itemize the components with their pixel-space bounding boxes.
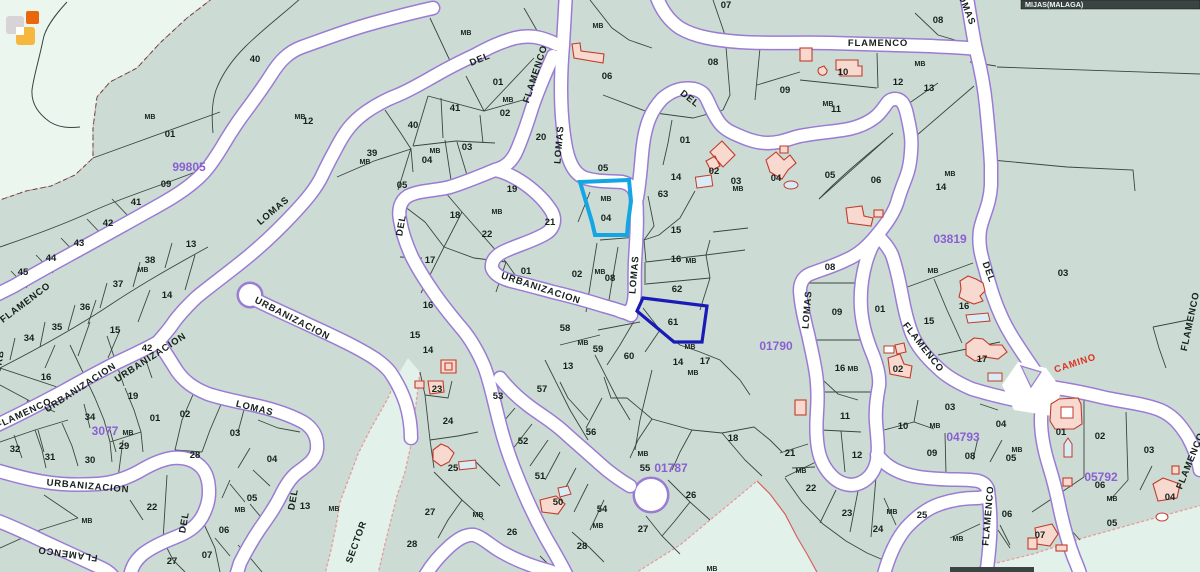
svg-text:37: 37 — [113, 279, 124, 290]
svg-text:05: 05 — [1006, 453, 1017, 464]
svg-text:16: 16 — [671, 254, 682, 265]
svg-text:15: 15 — [924, 316, 935, 327]
svg-text:02: 02 — [180, 409, 191, 420]
svg-text:MB: MB — [601, 196, 612, 203]
svg-text:06: 06 — [1002, 509, 1013, 520]
svg-text:01: 01 — [493, 77, 504, 88]
svg-text:MB: MB — [796, 468, 807, 475]
svg-text:55: 55 — [640, 463, 651, 474]
svg-text:26: 26 — [507, 527, 518, 538]
svg-text:03: 03 — [945, 402, 956, 413]
svg-text:09: 09 — [927, 448, 938, 459]
svg-text:01: 01 — [1056, 427, 1067, 438]
svg-text:MB: MB — [492, 209, 503, 216]
svg-text:05: 05 — [598, 163, 609, 174]
svg-text:24: 24 — [873, 524, 884, 535]
svg-text:MB: MB — [930, 423, 941, 430]
svg-text:3077: 3077 — [92, 424, 119, 438]
svg-text:MB: MB — [82, 518, 93, 525]
svg-text:14: 14 — [936, 182, 947, 193]
svg-text:62: 62 — [672, 284, 683, 295]
svg-text:MB: MB — [1012, 447, 1023, 454]
svg-text:05: 05 — [1107, 518, 1118, 529]
svg-text:MB: MB — [593, 23, 604, 30]
svg-text:MB: MB — [915, 61, 926, 68]
svg-text:19: 19 — [507, 184, 518, 195]
svg-text:MB: MB — [953, 536, 964, 543]
svg-text:29: 29 — [119, 441, 130, 452]
svg-text:31: 31 — [45, 452, 56, 463]
svg-text:MB: MB — [430, 148, 441, 155]
svg-text:05: 05 — [825, 170, 836, 181]
svg-text:39: 39 — [367, 148, 378, 159]
svg-text:25: 25 — [448, 463, 459, 474]
svg-text:28: 28 — [407, 539, 418, 550]
svg-text:36: 36 — [80, 302, 91, 313]
svg-text:50: 50 — [553, 497, 564, 508]
svg-text:18: 18 — [450, 210, 461, 221]
svg-text:60: 60 — [624, 351, 635, 362]
svg-text:35: 35 — [52, 322, 63, 333]
svg-text:17: 17 — [425, 255, 436, 266]
svg-text:02: 02 — [572, 269, 583, 280]
svg-text:07: 07 — [1035, 530, 1046, 541]
svg-text:01787: 01787 — [654, 461, 688, 475]
svg-text:12: 12 — [852, 450, 863, 461]
svg-text:52: 52 — [518, 436, 529, 447]
svg-text:16: 16 — [423, 300, 434, 311]
svg-text:MB: MB — [945, 171, 956, 178]
svg-text:44: 44 — [46, 253, 57, 264]
svg-text:14: 14 — [423, 345, 434, 356]
svg-text:MB: MB — [461, 30, 472, 37]
svg-text:15: 15 — [671, 225, 682, 236]
svg-text:04: 04 — [267, 454, 278, 465]
svg-text:05: 05 — [397, 180, 408, 191]
svg-text:34: 34 — [24, 333, 35, 344]
svg-text:22: 22 — [482, 229, 493, 240]
svg-text:59: 59 — [593, 344, 604, 355]
svg-text:25: 25 — [917, 510, 928, 521]
svg-text:02: 02 — [1095, 431, 1106, 442]
svg-text:21: 21 — [785, 448, 796, 459]
svg-text:27: 27 — [167, 556, 178, 567]
svg-text:43: 43 — [74, 238, 85, 249]
svg-text:01: 01 — [165, 129, 176, 140]
svg-text:03: 03 — [1058, 268, 1069, 279]
svg-text:40: 40 — [250, 54, 261, 65]
svg-text:05792: 05792 — [1084, 470, 1118, 484]
svg-text:09: 09 — [161, 179, 172, 190]
svg-text:MB: MB — [235, 507, 246, 514]
svg-text:MB: MB — [503, 97, 514, 104]
svg-text:08: 08 — [605, 273, 616, 284]
svg-text:MB: MB — [707, 566, 718, 572]
svg-text:MB: MB — [685, 344, 696, 351]
svg-text:05: 05 — [247, 493, 258, 504]
svg-text:02: 02 — [893, 364, 904, 375]
svg-text:MB: MB — [686, 258, 697, 265]
svg-text:MB: MB — [360, 159, 371, 166]
svg-text:MB: MB — [848, 366, 859, 373]
svg-text:MB: MB — [688, 370, 699, 377]
svg-text:09: 09 — [832, 307, 843, 318]
svg-text:MB: MB — [887, 509, 898, 516]
svg-text:63: 63 — [658, 189, 669, 200]
svg-text:FLAMENCO: FLAMENCO — [848, 38, 908, 49]
svg-text:58: 58 — [560, 323, 571, 334]
svg-text:01: 01 — [150, 413, 161, 424]
svg-text:03819: 03819 — [933, 232, 967, 246]
svg-text:03: 03 — [462, 142, 473, 153]
svg-text:13: 13 — [924, 83, 935, 94]
svg-text:28: 28 — [190, 450, 201, 461]
svg-text:13: 13 — [563, 361, 574, 372]
svg-text:01: 01 — [875, 304, 886, 315]
svg-text:18: 18 — [728, 433, 739, 444]
svg-text:23: 23 — [432, 384, 443, 395]
svg-text:04: 04 — [1165, 492, 1176, 503]
svg-text:02: 02 — [500, 108, 511, 119]
svg-text:MB: MB — [145, 114, 156, 121]
svg-text:99805: 99805 — [172, 160, 206, 174]
svg-text:08: 08 — [965, 451, 976, 462]
svg-text:08: 08 — [933, 15, 944, 26]
svg-text:13: 13 — [300, 501, 311, 512]
svg-text:24: 24 — [443, 416, 454, 427]
svg-text:17: 17 — [700, 356, 711, 367]
svg-text:27: 27 — [425, 507, 436, 518]
svg-text:04793: 04793 — [946, 430, 980, 444]
svg-text:04: 04 — [601, 213, 612, 224]
svg-text:06: 06 — [602, 71, 613, 82]
svg-text:21: 21 — [545, 217, 556, 228]
svg-text:23: 23 — [842, 508, 853, 519]
svg-text:MB: MB — [593, 523, 604, 530]
svg-text:MIJAS(MALAGA): MIJAS(MALAGA) — [1025, 0, 1084, 9]
svg-text:19: 19 — [128, 391, 139, 402]
svg-text:41: 41 — [131, 197, 142, 208]
svg-text:06: 06 — [219, 525, 230, 536]
svg-text:17: 17 — [977, 354, 988, 365]
svg-text:03: 03 — [1144, 445, 1155, 456]
svg-text:01: 01 — [521, 266, 532, 277]
svg-text:27: 27 — [638, 524, 649, 535]
svg-text:26: 26 — [686, 490, 697, 501]
svg-text:08: 08 — [825, 262, 836, 273]
svg-text:04: 04 — [422, 155, 433, 166]
svg-text:16: 16 — [835, 363, 846, 374]
svg-text:22: 22 — [806, 483, 817, 494]
svg-text:16: 16 — [41, 372, 52, 383]
svg-text:01790: 01790 — [759, 339, 793, 353]
svg-text:01: 01 — [680, 135, 691, 146]
svg-text:06: 06 — [871, 175, 882, 186]
svg-text:04: 04 — [996, 419, 1007, 430]
svg-text:12: 12 — [893, 77, 904, 88]
svg-text:13: 13 — [186, 239, 197, 250]
svg-text:51: 51 — [535, 471, 546, 482]
svg-text:07: 07 — [202, 550, 213, 561]
svg-text:MB: MB — [329, 506, 340, 513]
svg-text:02: 02 — [709, 166, 720, 177]
svg-text:42: 42 — [103, 218, 114, 229]
svg-text:MB: MB — [928, 268, 939, 275]
svg-text:10: 10 — [838, 67, 849, 78]
svg-text:14: 14 — [671, 172, 682, 183]
svg-text:09: 09 — [780, 85, 791, 96]
svg-text:61: 61 — [668, 317, 679, 328]
svg-text:MB: MB — [138, 267, 149, 274]
svg-text:14: 14 — [162, 290, 173, 301]
svg-text:45: 45 — [18, 267, 29, 278]
svg-text:54: 54 — [597, 504, 608, 515]
svg-text:03: 03 — [230, 428, 241, 439]
svg-text:12: 12 — [303, 116, 314, 127]
svg-text:28: 28 — [577, 541, 588, 552]
svg-text:30: 30 — [85, 455, 96, 466]
svg-text:40: 40 — [408, 120, 419, 131]
svg-text:MB: MB — [123, 430, 134, 437]
svg-text:41: 41 — [450, 103, 461, 114]
svg-text:34: 34 — [85, 412, 96, 423]
svg-text:22: 22 — [147, 502, 158, 513]
svg-text:MB: MB — [473, 512, 484, 519]
svg-text:11: 11 — [840, 411, 851, 422]
svg-text:14: 14 — [673, 357, 684, 368]
svg-text:20: 20 — [536, 132, 547, 143]
svg-text:15: 15 — [410, 330, 421, 341]
svg-text:32: 32 — [10, 444, 21, 455]
svg-text:10: 10 — [898, 421, 909, 432]
svg-text:MB: MB — [638, 451, 649, 458]
svg-text:07: 07 — [721, 0, 732, 11]
svg-text:15: 15 — [110, 325, 121, 336]
svg-text:MB: MB — [733, 186, 744, 193]
svg-text:11: 11 — [831, 104, 842, 115]
svg-text:MB: MB — [578, 340, 589, 347]
svg-text:MB: MB — [1107, 496, 1118, 503]
svg-text:56: 56 — [586, 427, 597, 438]
svg-text:53: 53 — [493, 391, 504, 402]
svg-text:08: 08 — [708, 57, 719, 68]
svg-text:04: 04 — [771, 173, 782, 184]
svg-text:16: 16 — [959, 301, 970, 312]
svg-text:57: 57 — [537, 384, 548, 395]
svg-text:38: 38 — [145, 255, 156, 266]
